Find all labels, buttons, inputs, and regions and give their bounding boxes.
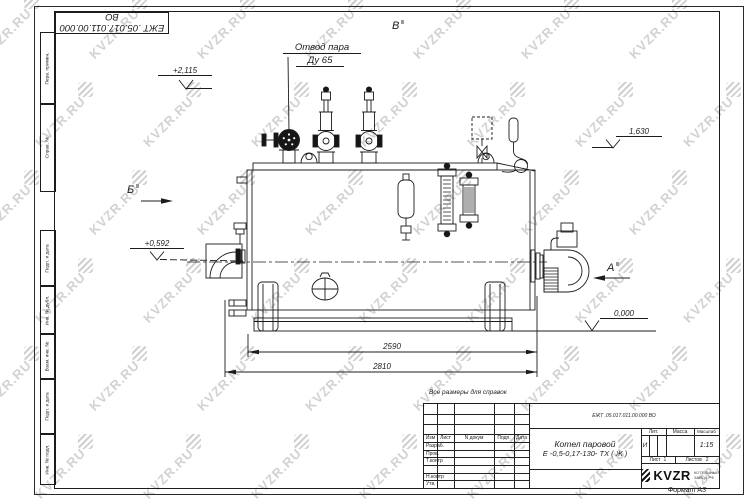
view-sub-mark — [136, 184, 139, 188]
dimension-2810: 2810 — [342, 362, 422, 371]
view-letter: В — [392, 20, 399, 32]
tb-name-cell: Котел паровой Е -0,5-0,17-130- ТХ ( Ж ) — [529, 428, 641, 469]
view-sub-mark — [401, 20, 404, 24]
tb-sheets-value: 2 — [706, 457, 709, 463]
steam-outlet-label: Отвод пара — [283, 42, 361, 54]
tb-name-line1: Котел паровой — [555, 439, 616, 449]
title-block: Изм Лист N докум Подп. Дата Разраб. Пров… — [423, 403, 720, 489]
front-fittings — [229, 177, 247, 316]
tb-col-podp: Подп. — [494, 434, 514, 442]
shutoff-valve — [262, 130, 300, 164]
tb-sheets-cell: Листов 2 — [675, 456, 719, 463]
boiler-shell — [187, 163, 547, 310]
kvzr-logo-subtext: КОТЕЛЬНЫЙ ЗАВОД.РФ — [694, 471, 719, 480]
tb-col-list: Лист — [437, 434, 454, 442]
elevation-zero: 0,000 — [600, 309, 648, 319]
tb-sheets-label: Листов — [685, 457, 701, 463]
tb-scale-header: Масштаб — [694, 428, 719, 435]
tb-row-prov: Пров. — [424, 450, 456, 457]
tb-doc-number: ЕЖТ .05.017.011.00.000 ВО — [529, 404, 719, 428]
tb-row-nkontr: Н.контр — [424, 473, 456, 480]
kvzr-logo-icon — [641, 469, 650, 482]
tb-gridline — [494, 404, 495, 488]
tb-col-data: Дата — [514, 434, 529, 442]
steam-outlet-dn-label: Ду 65 — [296, 55, 344, 67]
elevation-right: 1,630 — [616, 127, 662, 137]
tb-sheet-cell: Лист 1 — [641, 456, 675, 463]
corner-doc-number: ЕЖТ .05.017.011.00.000 ВО — [55, 12, 169, 34]
level-sensor — [502, 118, 528, 173]
water-level-gauge-2 — [460, 172, 478, 228]
elevation-burner: +0,592 — [130, 239, 184, 249]
elevation-marks — [150, 80, 620, 331]
tb-gridline — [649, 435, 650, 456]
view-marker-a: А — [607, 262, 619, 274]
tb-row-utv: Утв. — [424, 480, 456, 488]
kvzr-sub-line2: ЗАВОД.РФ — [694, 476, 719, 481]
tb-gridline — [424, 424, 529, 425]
tb-gridline — [529, 469, 641, 470]
view-sub-mark — [616, 262, 619, 266]
tb-row-tkontr: Т.контр — [424, 457, 456, 465]
tb-company-cell: KVZR КОТЕЛЬНЫЙ ЗАВОД.РФ — [641, 463, 719, 488]
drawing-sheet: KVZR.RUKVZR.RUKVZR.RUKVZR.RUKVZR.RUKVZR.… — [0, 0, 750, 500]
water-level-gauge-1 — [438, 163, 456, 237]
tb-mass-header: Масса — [666, 428, 694, 435]
tb-gridline — [657, 435, 658, 456]
tb-lit-value: И — [641, 435, 649, 456]
tb-gridline — [514, 404, 515, 488]
manhole — [312, 273, 338, 300]
dimension-2590: 2590 — [352, 342, 432, 351]
leader-lines — [288, 57, 289, 132]
kvzr-logo-text: KVZR — [653, 468, 690, 483]
tb-name-line2: Е -0,5-0,17-130- ТХ ( Ж ) — [543, 449, 627, 458]
tb-scale-value: 1:15 — [694, 435, 719, 456]
view-marker-v: В — [392, 20, 404, 32]
view-letter: Б — [127, 184, 134, 196]
gauge-pot — [398, 174, 414, 240]
safety-valve-1 — [313, 87, 339, 163]
view-marker-b: Б — [127, 184, 139, 196]
tb-row-razrab: Разраб. — [424, 442, 456, 450]
tb-lit-header: Лит. — [641, 428, 666, 435]
tb-col-izm: Изм — [424, 434, 437, 442]
view-letter: А — [607, 262, 614, 274]
safety-valve-2 — [356, 87, 382, 163]
tb-sheet-value: 1 — [664, 457, 667, 463]
feed-pump — [531, 223, 589, 292]
elevation-top: +2,115 — [158, 66, 212, 76]
tb-sheet-label: Лист — [650, 457, 661, 463]
lifting-lugs — [301, 153, 494, 163]
tb-gridline — [424, 465, 529, 466]
tb-gridline — [424, 414, 529, 415]
reference-note: Все размеры для справок — [429, 389, 544, 396]
tb-col-ndoc: N докум — [454, 434, 494, 442]
